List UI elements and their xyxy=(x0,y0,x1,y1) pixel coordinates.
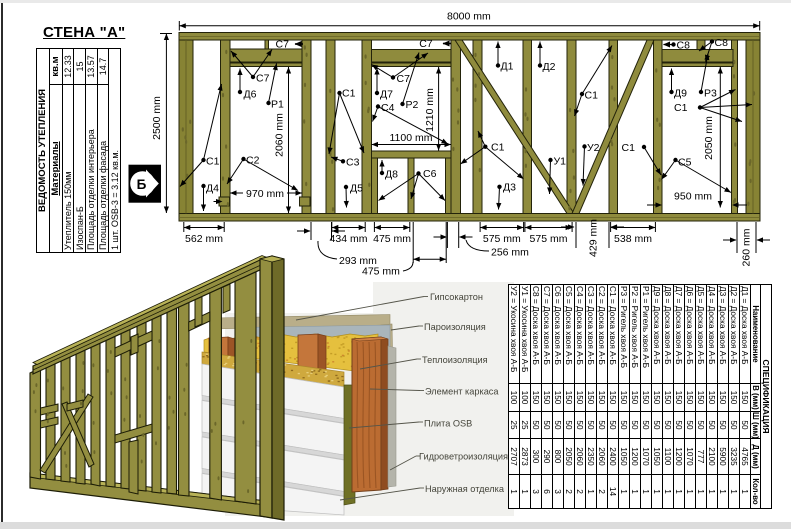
svg-text:С8: С8 xyxy=(677,40,691,52)
svg-text:475 mm: 475 mm xyxy=(362,266,400,278)
svg-text:С1: С1 xyxy=(206,156,220,168)
svg-text:429 mm: 429 mm xyxy=(588,219,600,257)
svg-text:Элемент каркаса: Элемент каркаса xyxy=(425,387,499,397)
svg-text:Д9: Д9 xyxy=(674,88,687,100)
svg-text:Д6: Д6 xyxy=(244,89,257,101)
svg-text:Р1: Р1 xyxy=(271,99,284,111)
svg-text:Д2: Д2 xyxy=(543,61,556,73)
svg-text:Плита OSB: Плита OSB xyxy=(424,419,472,429)
svg-text:Д1: Д1 xyxy=(501,61,514,73)
svg-text:575 mm: 575 mm xyxy=(530,233,568,245)
svg-text:С7: С7 xyxy=(276,39,290,51)
svg-text:С1: С1 xyxy=(491,142,505,154)
svg-text:434 mm: 434 mm xyxy=(330,233,368,245)
svg-text:970 mm: 970 mm xyxy=(246,188,284,200)
svg-text:Б: Б xyxy=(137,177,147,192)
svg-text:С1: С1 xyxy=(622,142,636,154)
svg-text:Д7: Д7 xyxy=(380,89,393,101)
svg-text:С4: С4 xyxy=(381,102,395,114)
svg-text:С7: С7 xyxy=(256,73,270,85)
svg-text:562 mm: 562 mm xyxy=(185,233,223,245)
svg-text:260 mm: 260 mm xyxy=(741,228,753,266)
svg-text:С1: С1 xyxy=(585,90,599,102)
svg-text:950 mm: 950 mm xyxy=(674,191,712,203)
svg-text:С7: С7 xyxy=(397,73,411,85)
svg-text:1210 mm: 1210 mm xyxy=(424,88,436,132)
svg-text:С1: С1 xyxy=(674,102,688,114)
svg-text:Пароизоляция: Пароизоляция xyxy=(424,322,486,332)
svg-text:2060 mm: 2060 mm xyxy=(274,113,286,157)
svg-text:Теплоизоляция: Теплоизоляция xyxy=(422,355,488,365)
svg-text:У2: У2 xyxy=(587,142,600,154)
svg-text:С1: С1 xyxy=(342,88,356,100)
svg-text:Наружная отделка: Наружная отделка xyxy=(425,484,505,494)
svg-text:Р3: Р3 xyxy=(704,88,717,100)
svg-text:2500 mm: 2500 mm xyxy=(151,96,163,140)
svg-text:8000 mm: 8000 mm xyxy=(447,11,491,23)
svg-text:С5: С5 xyxy=(678,157,692,169)
svg-text:2050 mm: 2050 mm xyxy=(703,116,715,160)
svg-text:575 mm: 575 mm xyxy=(483,233,521,245)
svg-text:У1: У1 xyxy=(554,156,567,168)
svg-text:Гипсокартон: Гипсокартон xyxy=(430,292,483,302)
svg-text:Д4: Д4 xyxy=(206,183,219,195)
svg-text:538 mm: 538 mm xyxy=(614,233,652,245)
svg-text:Д5: Д5 xyxy=(350,183,363,195)
svg-text:256 mm: 256 mm xyxy=(491,247,529,259)
svg-text:С8: С8 xyxy=(715,37,729,49)
svg-text:Гидроветроизоляция: Гидроветроизоляция xyxy=(419,452,508,462)
svg-text:475 mm: 475 mm xyxy=(373,233,411,245)
svg-text:Д3: Д3 xyxy=(503,182,516,194)
svg-text:Р2: Р2 xyxy=(406,99,419,111)
svg-text:С3: С3 xyxy=(346,157,360,169)
svg-text:С2: С2 xyxy=(246,155,260,167)
svg-text:С7: С7 xyxy=(419,38,433,50)
svg-text:С6: С6 xyxy=(423,168,437,180)
svg-text:1100 mm: 1100 mm xyxy=(390,132,433,144)
svg-text:Д8: Д8 xyxy=(385,169,398,181)
